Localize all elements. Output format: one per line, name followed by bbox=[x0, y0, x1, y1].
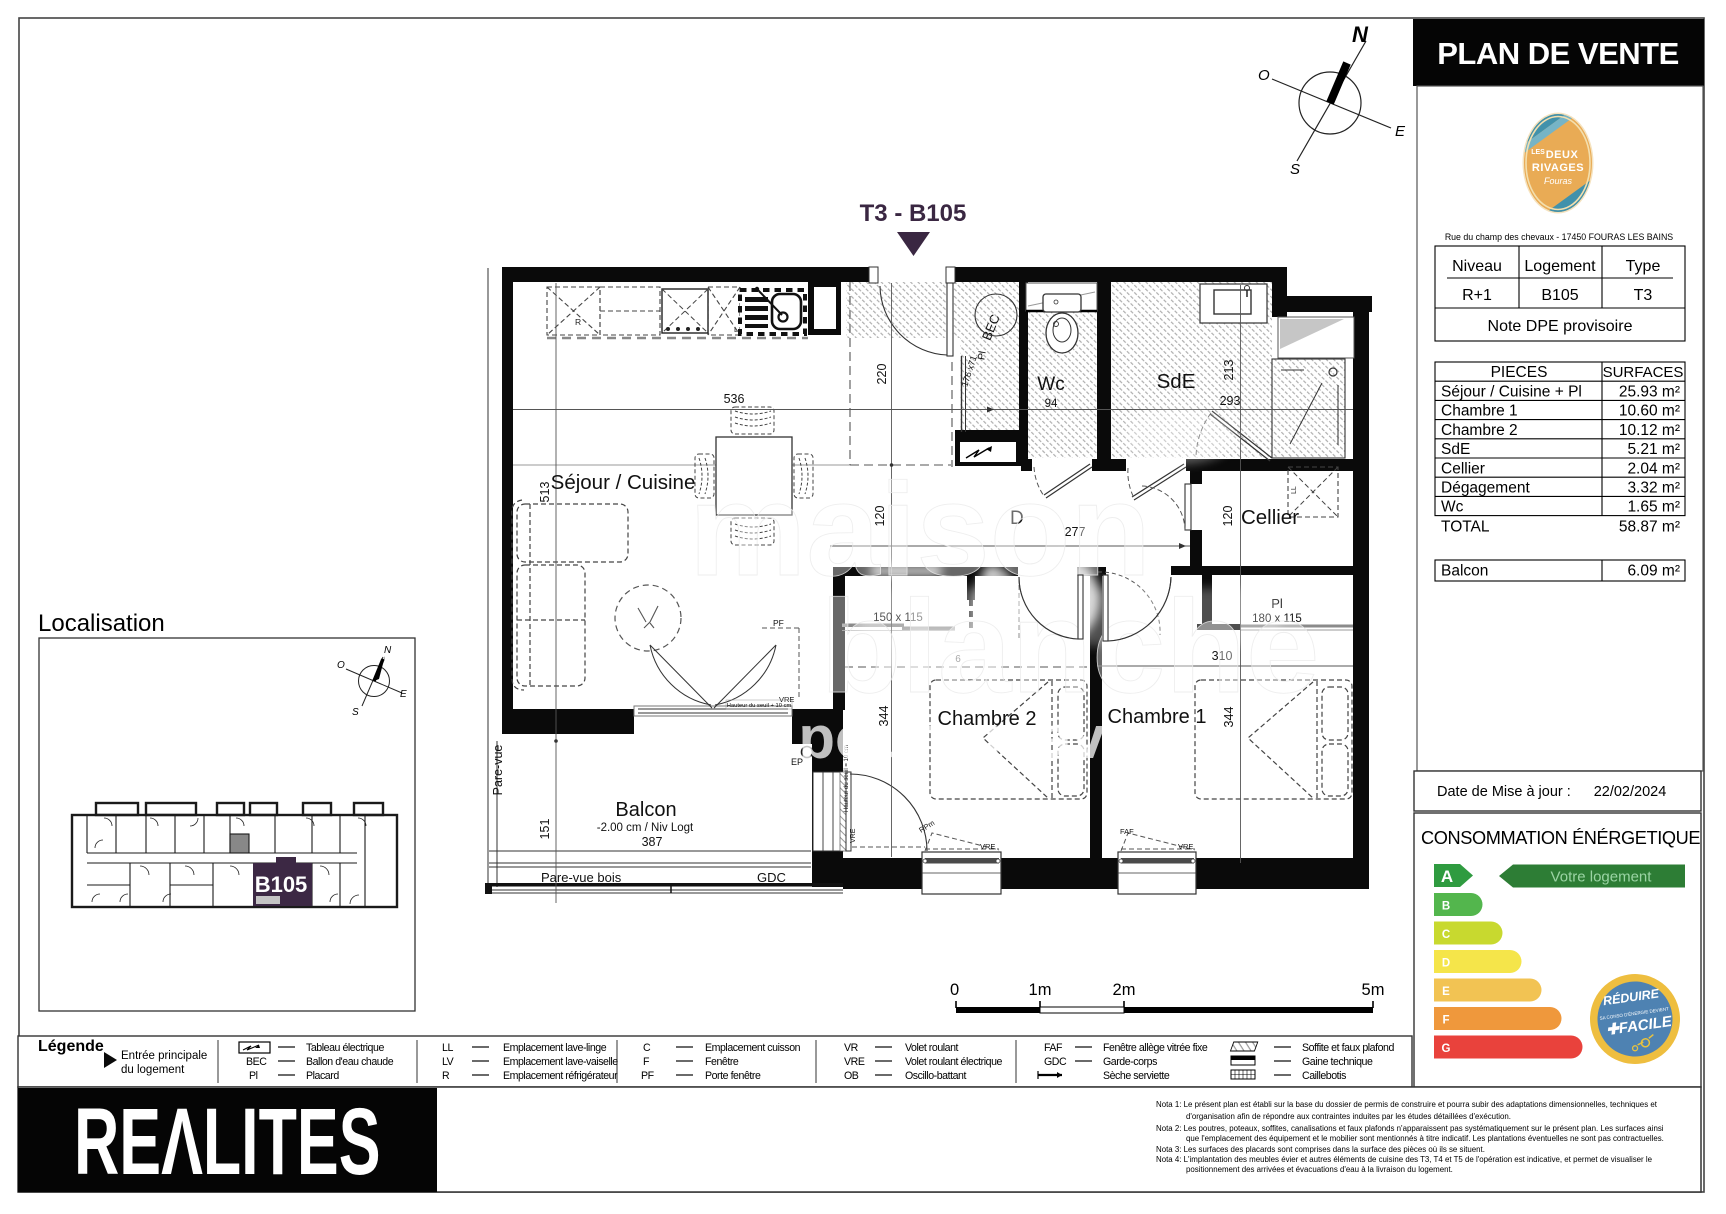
svg-text:VRE: VRE bbox=[844, 1056, 865, 1068]
svg-text:L: L bbox=[734, 325, 738, 334]
svg-text:VR: VR bbox=[844, 1042, 859, 1054]
svg-text:DEUX: DEUX bbox=[1546, 149, 1579, 161]
svg-text:T3 - B105: T3 - B105 bbox=[860, 200, 967, 227]
svg-text:151: 151 bbox=[538, 819, 552, 840]
svg-text:Sèche serviette: Sèche serviette bbox=[1103, 1070, 1170, 1082]
svg-text:B105: B105 bbox=[255, 872, 308, 897]
svg-text:GDC: GDC bbox=[757, 870, 786, 885]
svg-text:Nota 4: L'implantation des meu: Nota 4: L'implantation des meubles évier… bbox=[1156, 1155, 1653, 1164]
svg-text:Volet roulant électrique: Volet roulant électrique bbox=[905, 1056, 1003, 1068]
svg-text:293: 293 bbox=[1220, 394, 1241, 408]
svg-text:Pl: Pl bbox=[976, 350, 988, 361]
svg-text:2m: 2m bbox=[1113, 981, 1136, 999]
svg-text:Cellier: Cellier bbox=[1441, 460, 1485, 477]
svg-text:du logement: du logement bbox=[121, 1064, 185, 1076]
svg-text:Séjour / Cuisine + Pl: Séjour / Cuisine + Pl bbox=[1441, 384, 1582, 401]
svg-text:Localisation: Localisation bbox=[38, 610, 165, 637]
svg-text:Date de Mise à jour :: Date de Mise à jour : bbox=[1437, 784, 1571, 800]
svg-text:d'organisation afin de répondr: d'organisation afin de répondre aux cont… bbox=[1186, 1112, 1511, 1121]
svg-text:N: N bbox=[1352, 22, 1369, 47]
svg-text:-2.00 cm / Niv Logt: -2.00 cm / Niv Logt bbox=[597, 822, 694, 834]
svg-text:Fouras: Fouras bbox=[1544, 176, 1573, 186]
svg-text:LV: LV bbox=[442, 1056, 455, 1068]
svg-text:VRE: VRE bbox=[980, 842, 995, 851]
svg-text:Dégagement: Dégagement bbox=[1441, 480, 1530, 497]
svg-text:Ballon d'eau chaude: Ballon d'eau chaude bbox=[306, 1056, 394, 1068]
svg-text:Pare-vue bois: Pare-vue bois bbox=[541, 870, 622, 885]
svg-text:Pare-vue: Pare-vue bbox=[491, 745, 505, 796]
svg-text:R: R bbox=[575, 317, 581, 327]
svg-text:Oscillo-battant: Oscillo-battant bbox=[905, 1070, 966, 1082]
svg-text:R: R bbox=[442, 1070, 450, 1082]
svg-text:Pl: Pl bbox=[249, 1070, 258, 1082]
svg-text:PIECES: PIECES bbox=[1491, 364, 1548, 381]
svg-text:B: B bbox=[1442, 901, 1450, 913]
svg-text:22/02/2024: 22/02/2024 bbox=[1594, 784, 1667, 800]
svg-text:B105: B105 bbox=[1541, 287, 1578, 304]
svg-text:SURFACES: SURFACES bbox=[1603, 364, 1684, 381]
svg-text:Balcon: Balcon bbox=[615, 799, 676, 821]
svg-text:Volet roulant: Volet roulant bbox=[905, 1042, 959, 1054]
svg-text:Nota 3: Les surfaces des placa: Nota 3: Les surfaces des placards sont c… bbox=[1156, 1145, 1485, 1154]
svg-text:Cellier: Cellier bbox=[1241, 506, 1299, 529]
svg-text:Wc: Wc bbox=[1037, 374, 1064, 395]
svg-text:Caillebotis: Caillebotis bbox=[1302, 1070, 1346, 1082]
svg-text:CONSOMMATION ÉNÉRGETIQUE: CONSOMMATION ÉNÉRGETIQUE bbox=[1421, 828, 1700, 848]
svg-text:Emplacement lave-linge: Emplacement lave-linge bbox=[503, 1042, 607, 1054]
svg-text:PF: PF bbox=[773, 618, 784, 628]
svg-text:VRE: VRE bbox=[1178, 842, 1193, 851]
svg-text:T3: T3 bbox=[1634, 287, 1653, 304]
svg-text:58.87 m²: 58.87 m² bbox=[1619, 519, 1680, 536]
svg-text:E: E bbox=[1395, 123, 1406, 140]
svg-text:FAF: FAF bbox=[1120, 827, 1134, 836]
svg-text:Tableau électrique: Tableau électrique bbox=[306, 1042, 384, 1054]
svg-text:94: 94 bbox=[1045, 398, 1058, 410]
svg-text:S: S bbox=[1290, 161, 1300, 178]
svg-text:N: N bbox=[384, 645, 392, 656]
svg-text:REΛLITES: REΛLITES bbox=[74, 1089, 381, 1195]
svg-text:Type: Type bbox=[1626, 258, 1661, 275]
svg-text:LL: LL bbox=[442, 1042, 453, 1054]
svg-text:1.65 m²: 1.65 m² bbox=[1627, 499, 1680, 516]
svg-text:F: F bbox=[1442, 1015, 1449, 1027]
svg-text:220: 220 bbox=[875, 364, 889, 385]
svg-text:D: D bbox=[1442, 958, 1450, 970]
svg-text:VRE: VRE bbox=[850, 828, 857, 843]
svg-text:Placard: Placard bbox=[306, 1070, 339, 1082]
svg-text:Emplacement lave-vaiselle: Emplacement lave-vaiselle bbox=[503, 1056, 618, 1068]
svg-text:F: F bbox=[643, 1056, 650, 1068]
svg-text:blanche: blanche bbox=[821, 573, 1320, 720]
svg-text:25.93 m²: 25.93 m² bbox=[1619, 384, 1680, 401]
svg-text:1m: 1m bbox=[1029, 981, 1052, 999]
svg-text:3.32 m²: 3.32 m² bbox=[1627, 480, 1680, 497]
svg-text:Chambre 1: Chambre 1 bbox=[1441, 403, 1518, 420]
svg-text:PLAN DE VENTE: PLAN DE VENTE bbox=[1437, 36, 1679, 71]
svg-text:E: E bbox=[400, 689, 407, 700]
svg-text:Note DPE provisoire: Note DPE provisoire bbox=[1488, 318, 1633, 335]
svg-text:Porte fenêtre: Porte fenêtre bbox=[705, 1070, 761, 1082]
svg-text:C: C bbox=[1442, 929, 1450, 941]
svg-text:GDC: GDC bbox=[1044, 1056, 1067, 1068]
svg-text:RIVAGES: RIVAGES bbox=[1532, 162, 1584, 174]
svg-text:Gaine technique: Gaine technique bbox=[1302, 1056, 1373, 1068]
svg-text:213: 213 bbox=[1222, 360, 1236, 381]
svg-text:FAF: FAF bbox=[1044, 1042, 1063, 1054]
svg-text:SdE: SdE bbox=[1441, 441, 1470, 458]
svg-text:O: O bbox=[1258, 67, 1270, 84]
svg-text:E: E bbox=[1442, 986, 1450, 998]
svg-text:10.60 m²: 10.60 m² bbox=[1619, 403, 1680, 420]
svg-text:OB: OB bbox=[844, 1070, 859, 1082]
svg-text:positionnement des arrivées et: positionnement des arrivées et évacuatio… bbox=[1186, 1165, 1453, 1174]
svg-text:S: S bbox=[352, 707, 359, 718]
svg-text:Soffite et faux plafond: Soffite et faux plafond bbox=[1302, 1042, 1394, 1054]
svg-text:Garde-corps: Garde-corps bbox=[1103, 1056, 1157, 1068]
svg-text:que l'emplacement des équipeme: que l'emplacement des équipement et le m… bbox=[1186, 1134, 1664, 1143]
svg-text:A: A bbox=[1441, 867, 1453, 886]
svg-text:, pour un ave: , pour un ave bbox=[765, 704, 1138, 771]
svg-text:Nota 2: Les poutres, poteaux,: Nota 2: Les poutres, poteaux, soffites, … bbox=[1156, 1124, 1664, 1133]
svg-text:G: G bbox=[1442, 1043, 1451, 1055]
svg-text:C: C bbox=[643, 1042, 651, 1054]
svg-text:R+1: R+1 bbox=[1462, 287, 1492, 304]
svg-text:Légende: Légende bbox=[38, 1038, 104, 1055]
svg-text:120: 120 bbox=[1221, 506, 1235, 527]
svg-text:Votre logement: Votre logement bbox=[1551, 869, 1653, 886]
svg-text:SdE: SdE bbox=[1157, 370, 1196, 393]
svg-text:Logement: Logement bbox=[1524, 258, 1596, 275]
svg-text:Nota 1: Le présent plan est ét: Nota 1: Le présent plan est établi sur l… bbox=[1156, 1100, 1658, 1109]
svg-text:LES: LES bbox=[1531, 149, 1545, 156]
svg-text:LL: LL bbox=[1291, 486, 1298, 494]
svg-text:Séjour / Cuisine: Séjour / Cuisine bbox=[551, 471, 696, 494]
svg-text:O: O bbox=[337, 660, 345, 671]
svg-text:536: 536 bbox=[724, 392, 745, 406]
svg-text:Wc: Wc bbox=[1441, 499, 1464, 516]
svg-text:10.12 m²: 10.12 m² bbox=[1619, 422, 1680, 439]
svg-text:5m: 5m bbox=[1362, 981, 1385, 999]
svg-text:Balcon: Balcon bbox=[1441, 563, 1488, 580]
svg-text:Fenêtre allège vitrée fixe: Fenêtre allège vitrée fixe bbox=[1103, 1042, 1208, 1054]
svg-text:2.04 m²: 2.04 m² bbox=[1627, 460, 1680, 477]
svg-text:Emplacement cuisson: Emplacement cuisson bbox=[705, 1042, 801, 1054]
svg-text:0: 0 bbox=[950, 981, 959, 999]
svg-text:Entrée principale: Entrée principale bbox=[121, 1050, 207, 1062]
svg-text:Fenêtre: Fenêtre bbox=[705, 1056, 739, 1068]
svg-text:Niveau: Niveau bbox=[1452, 258, 1502, 275]
svg-text:TOTAL: TOTAL bbox=[1441, 519, 1490, 536]
svg-text:Emplacement réfrigérateur: Emplacement réfrigérateur bbox=[503, 1070, 618, 1082]
svg-text:BEC: BEC bbox=[246, 1056, 267, 1068]
svg-text:PF: PF bbox=[641, 1070, 655, 1082]
svg-text:5.21 m²: 5.21 m² bbox=[1627, 441, 1680, 458]
svg-text:6.09 m²: 6.09 m² bbox=[1627, 563, 1680, 580]
svg-text:387: 387 bbox=[642, 835, 663, 849]
svg-text:Chambre 2: Chambre 2 bbox=[1441, 422, 1518, 439]
svg-text:Rue du champ des chevaux - 174: Rue du champ des chevaux - 17450 FOURAS … bbox=[1445, 232, 1673, 242]
